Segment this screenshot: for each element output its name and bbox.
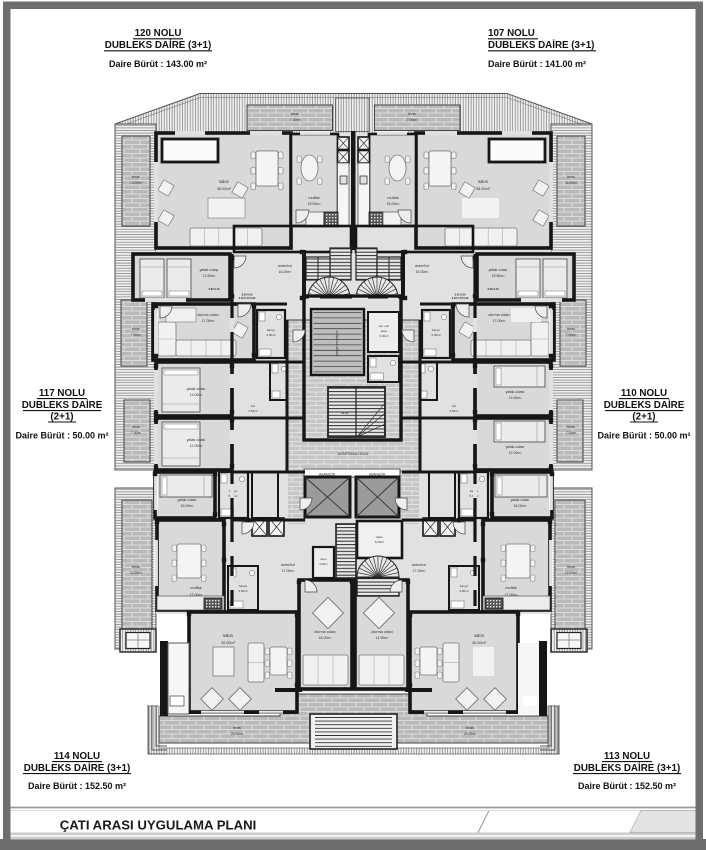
svg-text:36.90m²: 36.90m² [217, 187, 232, 191]
svg-text:13.00m²: 13.00m² [509, 396, 523, 400]
svg-text:114 NOLU: 114 NOLU [54, 751, 100, 762]
svg-text:DUBLEKS DAİRE: DUBLEKS DAİRE [604, 400, 685, 411]
svg-text:107 NOLU: 107 NOLU [488, 28, 535, 39]
svg-text:Daire Bürüt : 152.50 m²: Daire Bürüt : 152.50 m² [28, 781, 126, 791]
svg-text:13.00m²: 13.00m² [130, 181, 143, 185]
svg-text:teras: teras [567, 425, 575, 429]
svg-text:2.10 0.70 0.90: 2.10 0.70 0.90 [239, 296, 256, 300]
svg-text:hol: hol [251, 404, 255, 408]
svg-text:15.00m²: 15.00m² [387, 202, 401, 206]
svg-text:teras: teras [291, 112, 299, 116]
svg-text:yatak odası: yatak odası [187, 438, 206, 442]
svg-text:banyo: banyo [267, 328, 276, 332]
svg-text:Daire Bürüt : 50.00 m²: Daire Bürüt : 50.00 m² [15, 431, 108, 441]
svg-text:DUBLEKS DAİRE (3+1): DUBLEKS DAİRE (3+1) [488, 40, 594, 51]
svg-text:11.00m²: 11.00m² [565, 181, 578, 185]
svg-text:7.00m²: 7.00m² [290, 118, 301, 122]
svg-text:15.50m²: 15.50m² [492, 274, 506, 278]
svg-text:oturma odası: oturma odası [488, 313, 510, 317]
svg-text:banyo: banyo [460, 584, 469, 588]
svg-text:4.50m²: 4.50m² [248, 409, 257, 413]
svg-text:Daire Bürüt : 50.00 m²: Daire Bürüt : 50.00 m² [597, 431, 690, 441]
svg-text:20.00m²: 20.00m² [464, 732, 477, 736]
svg-text:antre/hol: antre/hol [281, 563, 296, 567]
svg-text:7.00m²: 7.00m² [407, 118, 418, 122]
svg-text:salon: salon [219, 179, 230, 184]
svg-text:13.50m²: 13.50m² [203, 274, 217, 278]
svg-text:antre/hol: antre/hol [415, 264, 430, 268]
svg-text:teras: teras [233, 726, 241, 730]
svg-text:5.00m²: 5.00m² [375, 540, 384, 544]
svg-text:muffak: muffak [190, 586, 201, 590]
svg-text:depo: depo [376, 535, 383, 539]
svg-text:15.00m²: 15.00m² [308, 202, 322, 206]
svg-text:yatak odası: yatak odası [506, 390, 525, 394]
svg-text:17.00m²: 17.00m² [413, 569, 427, 573]
svg-text:117 NOLU: 117 NOLU [39, 388, 85, 399]
svg-text:17.00m²: 17.00m² [202, 319, 216, 323]
svg-text:2.10 0.70 0.90: 2.10 0.70 0.90 [452, 296, 469, 300]
svg-text:7.00m²: 7.00m² [131, 431, 142, 435]
svg-text:oturma odası: oturma odası [314, 630, 336, 634]
svg-text:16.00m²: 16.00m² [181, 504, 195, 508]
svg-text:4.50m²: 4.50m² [238, 589, 247, 593]
svg-text:teras: teras [567, 327, 575, 331]
svg-text:DUBLEKS DAİRE: DUBLEKS DAİRE [22, 400, 103, 411]
svg-text:6.30m²: 6.30m² [380, 334, 389, 338]
svg-text:12.00m²: 12.00m² [190, 444, 204, 448]
svg-text:banyo: banyo [432, 328, 441, 332]
svg-text:4.30m²: 4.30m² [266, 333, 275, 337]
svg-text:2.00m²: 2.00m² [319, 562, 327, 566]
svg-text:Daire Bürüt : 152.50 m²: Daire Bürüt : 152.50 m² [578, 781, 676, 791]
svg-text:110 NOLU: 110 NOLU [621, 388, 667, 399]
svg-text:12.00m²: 12.00m² [130, 571, 143, 575]
svg-text:yatak odaşı: yatak odaşı [200, 268, 219, 272]
svg-text:Daire Bürüt : 141.00 m²: Daire Bürüt : 141.00 m² [488, 59, 586, 69]
svg-text:14.50m²: 14.50m² [376, 636, 390, 640]
svg-text:0.90 2.10: 0.90 2.10 [209, 287, 220, 291]
svg-text:yatak odası: yatak odası [187, 387, 206, 391]
svg-text:16.00m²: 16.00m² [279, 270, 293, 274]
svg-text:4.50m²: 4.50m² [459, 589, 468, 593]
svg-text:0.90 2.10: 0.90 2.10 [488, 287, 499, 291]
svg-text:oturma odası: oturma odası [371, 630, 393, 634]
svg-text:18.00m²: 18.00m² [319, 636, 333, 640]
svg-text:yatak odası: yatak odası [511, 498, 530, 502]
svg-text:7.00m²: 7.00m² [131, 333, 142, 337]
svg-text:antre/hol: antre/hol [412, 563, 427, 567]
svg-text:yangın merdiveni: yangın merdiveni [335, 330, 339, 355]
svg-text:DUBLEKS DAİRE (3+1): DUBLEKS DAİRE (3+1) [105, 40, 211, 51]
svg-text:teras: teras [567, 175, 575, 179]
svg-text:hol: hol [452, 404, 456, 408]
svg-text:APARTMAN HOLÜ: APARTMAN HOLÜ [338, 452, 369, 456]
svg-text:depo: depo [320, 557, 327, 561]
svg-text:yatak odası: yatak odası [506, 445, 525, 449]
svg-text:20.00m²: 20.00m² [231, 732, 244, 736]
svg-text:DUBLEKS DAİRE (3+1): DUBLEKS DAİRE (3+1) [574, 763, 680, 774]
svg-text:38.00m²: 38.00m² [476, 187, 491, 191]
svg-text:teras: teras [408, 112, 416, 116]
svg-text:muffak: muffak [505, 586, 516, 590]
svg-text:teras: teras [132, 425, 140, 429]
svg-text:4.50m²: 4.50m² [449, 409, 458, 413]
svg-text:teras: teras [132, 175, 140, 179]
svg-text:salon: salon [478, 179, 489, 184]
svg-text:16.00m²: 16.00m² [416, 270, 430, 274]
svg-text:muffak: muffak [387, 196, 398, 200]
svg-text:teras: teras [567, 565, 575, 569]
svg-text:12.00m²: 12.00m² [565, 571, 578, 575]
svg-text:yatak odası: yatak odası [489, 268, 508, 272]
svg-text:30.00m²: 30.00m² [472, 641, 487, 645]
svg-text:yatak odası: yatak odası [178, 498, 197, 502]
svg-text:120 NOLU: 120 NOLU [135, 28, 182, 39]
svg-text:teras: teras [132, 327, 140, 331]
svg-text:banyo: banyo [239, 584, 248, 588]
svg-text:12.00m²: 12.00m² [509, 451, 523, 455]
svg-text:alt kat: alt kat [342, 411, 349, 415]
svg-text:16.00m²: 16.00m² [514, 504, 528, 508]
svg-text:oturma odası: oturma odası [197, 313, 219, 317]
svg-text:DUBLEKS DAİRE (3+1): DUBLEKS DAİRE (3+1) [24, 763, 130, 774]
svg-text:7.00m²: 7.00m² [566, 431, 577, 435]
svg-text:ÇATI ARASI UYGULAMA PLANI: ÇATI ARASI UYGULAMA PLANI [60, 818, 257, 833]
svg-text:salon: salon [474, 633, 485, 638]
svg-text:depo: depo [381, 329, 388, 333]
svg-text:muffak: muffak [308, 196, 319, 200]
svg-text:7.00m²: 7.00m² [566, 333, 577, 337]
svg-text:Daire Bürüt : 143.00 m²: Daire Bürüt : 143.00 m² [109, 59, 207, 69]
svg-text:salon: salon [223, 633, 234, 638]
svg-text:teras: teras [466, 726, 474, 730]
svg-text:113 NOLU: 113 NOLU [604, 751, 650, 762]
svg-text:teras: teras [132, 565, 140, 569]
svg-text:kul. suit: kul. suit [379, 324, 389, 328]
svg-text:17.00m²: 17.00m² [282, 569, 296, 573]
svg-text:30.00m²: 30.00m² [221, 641, 236, 645]
svg-text:13.00m²: 13.00m² [190, 393, 204, 397]
svg-text:(2+1): (2+1) [632, 412, 655, 423]
svg-text:4.30m²: 4.30m² [431, 333, 440, 337]
svg-text:(2+1): (2+1) [50, 412, 73, 423]
svg-text:antre/hol: antre/hol [278, 264, 293, 268]
svg-text:17.00m²: 17.00m² [493, 319, 507, 323]
